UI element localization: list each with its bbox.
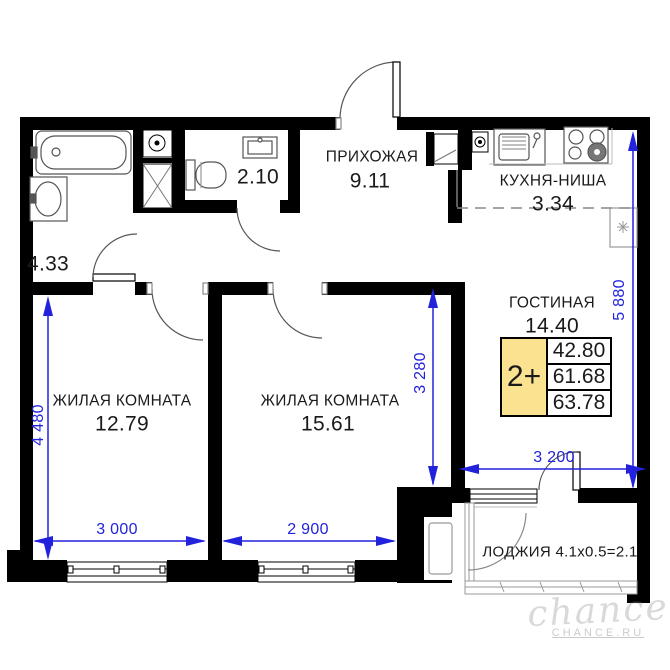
dim-right-height: 5 880: [612, 279, 628, 321]
badge-area-mid: 61.68: [546, 363, 612, 391]
badge-total-area: 63.78: [546, 389, 612, 417]
room-area-kitchen: 3.34: [532, 194, 574, 215]
room-label-living: ГОСТИНАЯ: [509, 295, 595, 311]
room-label-loggia: ЛОДЖИЯ 4.1х0.5=2.1: [482, 545, 637, 560]
room-area-living: 14.40: [525, 316, 579, 337]
floor-plan: ПРИХОЖАЯ 9.11 КУХНЯ-НИША 3.34 ГОСТИНАЯ 1…: [0, 0, 670, 670]
room-area-wc: 2.10: [237, 167, 279, 188]
dim-bedroom2-height: 3 280: [413, 352, 429, 394]
vent-shaft-icon: [143, 130, 172, 208]
bathtub-icon: [31, 131, 131, 174]
bath-sink-icon: [30, 177, 67, 221]
kitchen-sink-icon: [494, 129, 545, 165]
room-label-hallway: ПРИХОЖАЯ: [326, 149, 418, 165]
apartment-info-badge: 2+ 42.80 61.68 63.78: [500, 337, 612, 417]
stove-icon: [564, 127, 608, 163]
room-area-bathroom: 4.33: [27, 254, 69, 275]
badge-areas: 42.80 61.68 63.78: [546, 337, 612, 417]
badge-living-area: 42.80: [546, 337, 612, 365]
room-area-bedroom1: 12.79: [95, 414, 149, 435]
room-area-bedroom2: 15.61: [301, 414, 355, 435]
room-area-hallway: 9.11: [350, 171, 391, 192]
dim-living-width: 3 200: [533, 450, 575, 466]
wc-sink-icon: [243, 137, 277, 158]
watermark-caption: CHANCE.RU: [552, 627, 644, 639]
room-label-kitchen: КУХНЯ-НИША: [500, 173, 607, 189]
room-label-bedroom2: ЖИЛАЯ КОМНАТА: [261, 393, 400, 409]
dim-bedroom1-width: 3 000: [96, 522, 138, 538]
badge-room-count: 2+: [500, 337, 548, 417]
dim-bedroom1-height: 4 480: [31, 404, 47, 446]
dim-bedroom2-width: 2 900: [287, 522, 329, 538]
room-label-bedroom1: ЖИЛАЯ КОМНАТА: [53, 393, 192, 409]
toilet-icon: [186, 160, 226, 190]
